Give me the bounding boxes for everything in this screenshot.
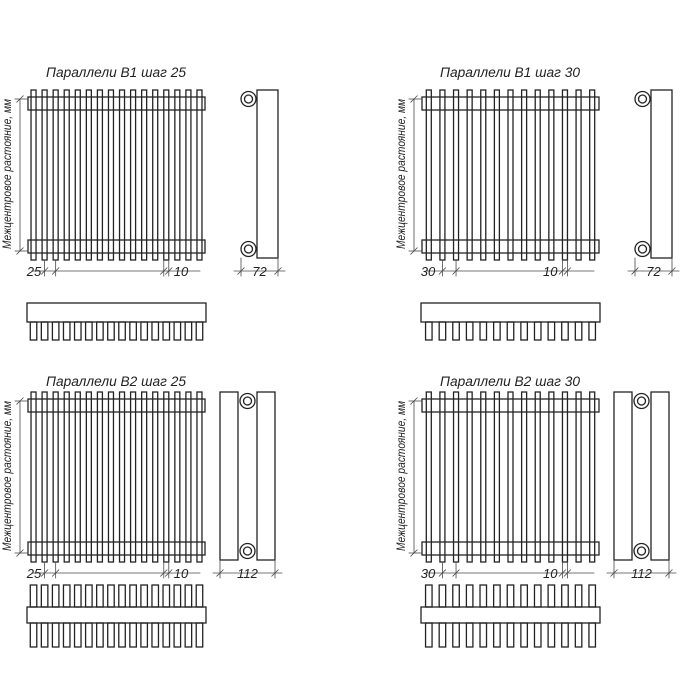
- top-view: [421, 585, 600, 647]
- quadrant-b1-step-30: Параллели В1 шаг 30 Межцентровое растоян…: [396, 65, 679, 340]
- dim-tube-width-label: 10: [543, 264, 558, 279]
- vertical-axis-label: Межцентровое растояние, мм: [2, 99, 14, 249]
- dim-depth-label: 112: [237, 566, 258, 581]
- quadrant-b1-step-25: Параллели В1 шаг 25 Межцентровое растоян…: [2, 65, 285, 340]
- vertical-axis-label: Межцентровое растояние, мм: [2, 401, 14, 551]
- radiator-drawing-sheet: Параллели В1 шаг 25 Межцентровое растоян…: [0, 0, 700, 700]
- front-view: [28, 392, 205, 562]
- dim-step-label: 30: [421, 566, 436, 581]
- front-view: [422, 90, 599, 260]
- top-view: [27, 585, 206, 647]
- dim-depth-label: 72: [252, 264, 267, 279]
- drawing-svg: Параллели В1 шаг 25 Межцентровое растоян…: [0, 0, 700, 700]
- dim-step-label: 25: [26, 566, 42, 581]
- drawing-title: Параллели В2 шаг 25: [46, 374, 186, 389]
- dim-step-label: 25: [26, 264, 42, 279]
- drawing-title: Параллели В1 шаг 30: [440, 65, 580, 80]
- dim-depth-label: 72: [646, 264, 661, 279]
- drawing-title: Параллели В2 шаг 30: [440, 374, 580, 389]
- dim-depth-label: 112: [631, 566, 652, 581]
- top-view: [421, 303, 600, 340]
- front-view: [28, 90, 205, 260]
- dim-tube-width-label: 10: [174, 566, 189, 581]
- front-view: [422, 392, 599, 562]
- dim-tube-width-label: 10: [174, 264, 189, 279]
- dim-step-label: 30: [421, 264, 436, 279]
- drawing-title: Параллели В1 шаг 25: [46, 65, 186, 80]
- quadrant-b2-step-30: Параллели В2 шаг 30 Межцентровое растоян…: [396, 374, 676, 647]
- side-view: [635, 90, 672, 258]
- dim-tube-width-label: 10: [543, 566, 558, 581]
- side-view: [614, 392, 669, 560]
- top-view: [27, 303, 206, 340]
- side-view: [241, 90, 278, 258]
- vertical-axis-label: Межцентровое растояние, мм: [396, 99, 408, 249]
- quadrant-b2-step-25: Параллели В2 шаг 25 Межцентровое растоян…: [2, 374, 282, 647]
- side-view: [220, 392, 275, 560]
- vertical-axis-label: Межцентровое растояние, мм: [396, 401, 408, 551]
